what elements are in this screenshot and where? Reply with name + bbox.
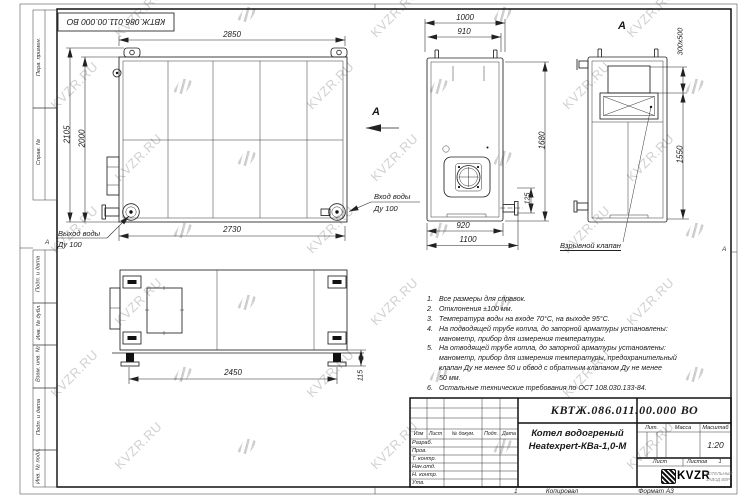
lit-header: Лит. bbox=[637, 425, 666, 431]
row-label-nachotd: Нач.отд. bbox=[412, 464, 436, 470]
note-line: 5.На отводящей трубе котла, до запорной … bbox=[427, 344, 733, 354]
row-label-tkontr: Т. контр. bbox=[412, 456, 436, 462]
technical-notes: 1.Все размеры для справок. 2.Отклонения … bbox=[427, 295, 733, 394]
zone-marker-left: А bbox=[45, 239, 49, 246]
dim-front-height-inner: 2000 bbox=[78, 119, 87, 159]
note-line: клапан Ду не менее 50 и обвод с обратным… bbox=[427, 364, 733, 374]
margin-label-sprav-no: Справ. № bbox=[36, 106, 42, 198]
footer-format: Формат А3 bbox=[632, 488, 680, 495]
note-line: 2.Отклонения ±100 мм. bbox=[427, 305, 733, 315]
dim-side-depth-outer: 1000 bbox=[443, 13, 487, 22]
col-header-data: Дата bbox=[500, 431, 518, 437]
outlet-label-line1: Выход воды bbox=[58, 229, 100, 238]
margin-label-perv-primen: Перв. примен. bbox=[36, 8, 42, 106]
product-name-line2: Heatexpert-КВа-1,0-М bbox=[519, 441, 636, 452]
dim-side-depth-inner: 910 bbox=[442, 27, 486, 36]
dim-front-width: 2850 bbox=[205, 30, 259, 39]
kvzr-logo-icon bbox=[661, 469, 676, 484]
text-layer: КВТЖ.086.011.00.000 ВО Перв. примен. Спр… bbox=[0, 0, 750, 500]
margin-label-vzam-inv: Взам. инв. № bbox=[36, 343, 42, 386]
dim-section-height: 1550 bbox=[676, 135, 685, 175]
sheet-label: Лист bbox=[637, 459, 683, 465]
dim-plan-width: 2450 bbox=[210, 368, 256, 377]
note-line: 3.Температура воды на входе 70°С, на вых… bbox=[427, 315, 733, 325]
outlet-label-line2: Ду 100 bbox=[58, 240, 82, 249]
dim-front-height-outer: 2105 bbox=[63, 115, 72, 155]
note-line: манометр, прибор для измерения температу… bbox=[427, 335, 733, 345]
zone-marker-right: А bbox=[722, 246, 726, 253]
logo-tagline-line1: КОТЕЛЬНЫЙ bbox=[706, 471, 732, 476]
dim-section-valve-size: 300х500 bbox=[676, 18, 685, 66]
dim-side-height: 1680 bbox=[538, 121, 547, 161]
scale-value: 1:20 bbox=[700, 440, 731, 450]
col-header-doc: № докум. bbox=[444, 431, 482, 437]
margin-label-inv-dubl: Инв. № дубл. bbox=[36, 301, 42, 343]
row-label-razrab: Разраб. bbox=[412, 440, 432, 446]
dim-side-pipe-offset: 125 bbox=[525, 179, 532, 219]
view-direction-label: А bbox=[372, 106, 380, 118]
sheets-label: Листов bbox=[683, 459, 711, 465]
dim-side-bottom-inner: 920 bbox=[441, 221, 485, 230]
logo-tagline-line2: ЗАВОД ВВР bbox=[706, 477, 730, 482]
margin-label-podp-data-1: Подп. и дата bbox=[36, 248, 42, 301]
note-line: 50 мм. bbox=[427, 374, 733, 384]
note-line: манометр, прибор для измерения температу… bbox=[427, 354, 733, 364]
section-view-label: А bbox=[618, 20, 626, 32]
row-label-utv: Утв. bbox=[412, 480, 425, 486]
top-stamp-designation: КВТЖ.086.011.00.000 ВО bbox=[58, 13, 174, 31]
note-line: 4.На подводящей трубе котла, до запорной… bbox=[427, 325, 733, 335]
col-header-podp: Подп. bbox=[482, 431, 500, 437]
title-block-designation: КВТЖ.086.011.00.000 ВО bbox=[520, 400, 729, 421]
note-line: 6.Остальные технические требования по ОС… bbox=[427, 384, 733, 394]
note-line: 1.Все размеры для справок. bbox=[427, 295, 733, 305]
sheets-value: 1 bbox=[711, 459, 729, 465]
drawing-sheet: KVZR.RUKVZR.RUKVZR.RUKVZR.RUKVZR.RUKVZR.… bbox=[0, 0, 750, 500]
inlet-label-line2: Ду 100 bbox=[374, 204, 398, 213]
footer-kopiroval: Копировал bbox=[538, 488, 586, 495]
explosion-valve-callout: Взрывной клапан bbox=[560, 241, 621, 251]
col-header-list: Лист bbox=[427, 431, 444, 437]
inlet-label-line1: Вход воды bbox=[374, 192, 410, 201]
zone-marker-bottom: 1 bbox=[514, 488, 518, 495]
row-label-prov: Пров. bbox=[412, 448, 427, 454]
scale-header: Масштаб bbox=[700, 425, 731, 431]
margin-label-podp-data-2: Подп. и дата bbox=[36, 386, 42, 448]
col-header-izm: Изм bbox=[410, 431, 427, 437]
product-name-line1: Котел водогреный bbox=[519, 428, 636, 439]
dim-side-bottom-outer: 1100 bbox=[446, 235, 490, 244]
row-label-nkontr: Н. контр. bbox=[412, 472, 437, 478]
mass-header: Масса bbox=[666, 425, 700, 431]
dim-front-bottom-width: 2730 bbox=[205, 225, 259, 234]
dim-plan-foot-height: 115 bbox=[358, 356, 365, 396]
margin-label-inv-podl: Инв. № подл. bbox=[36, 448, 42, 485]
